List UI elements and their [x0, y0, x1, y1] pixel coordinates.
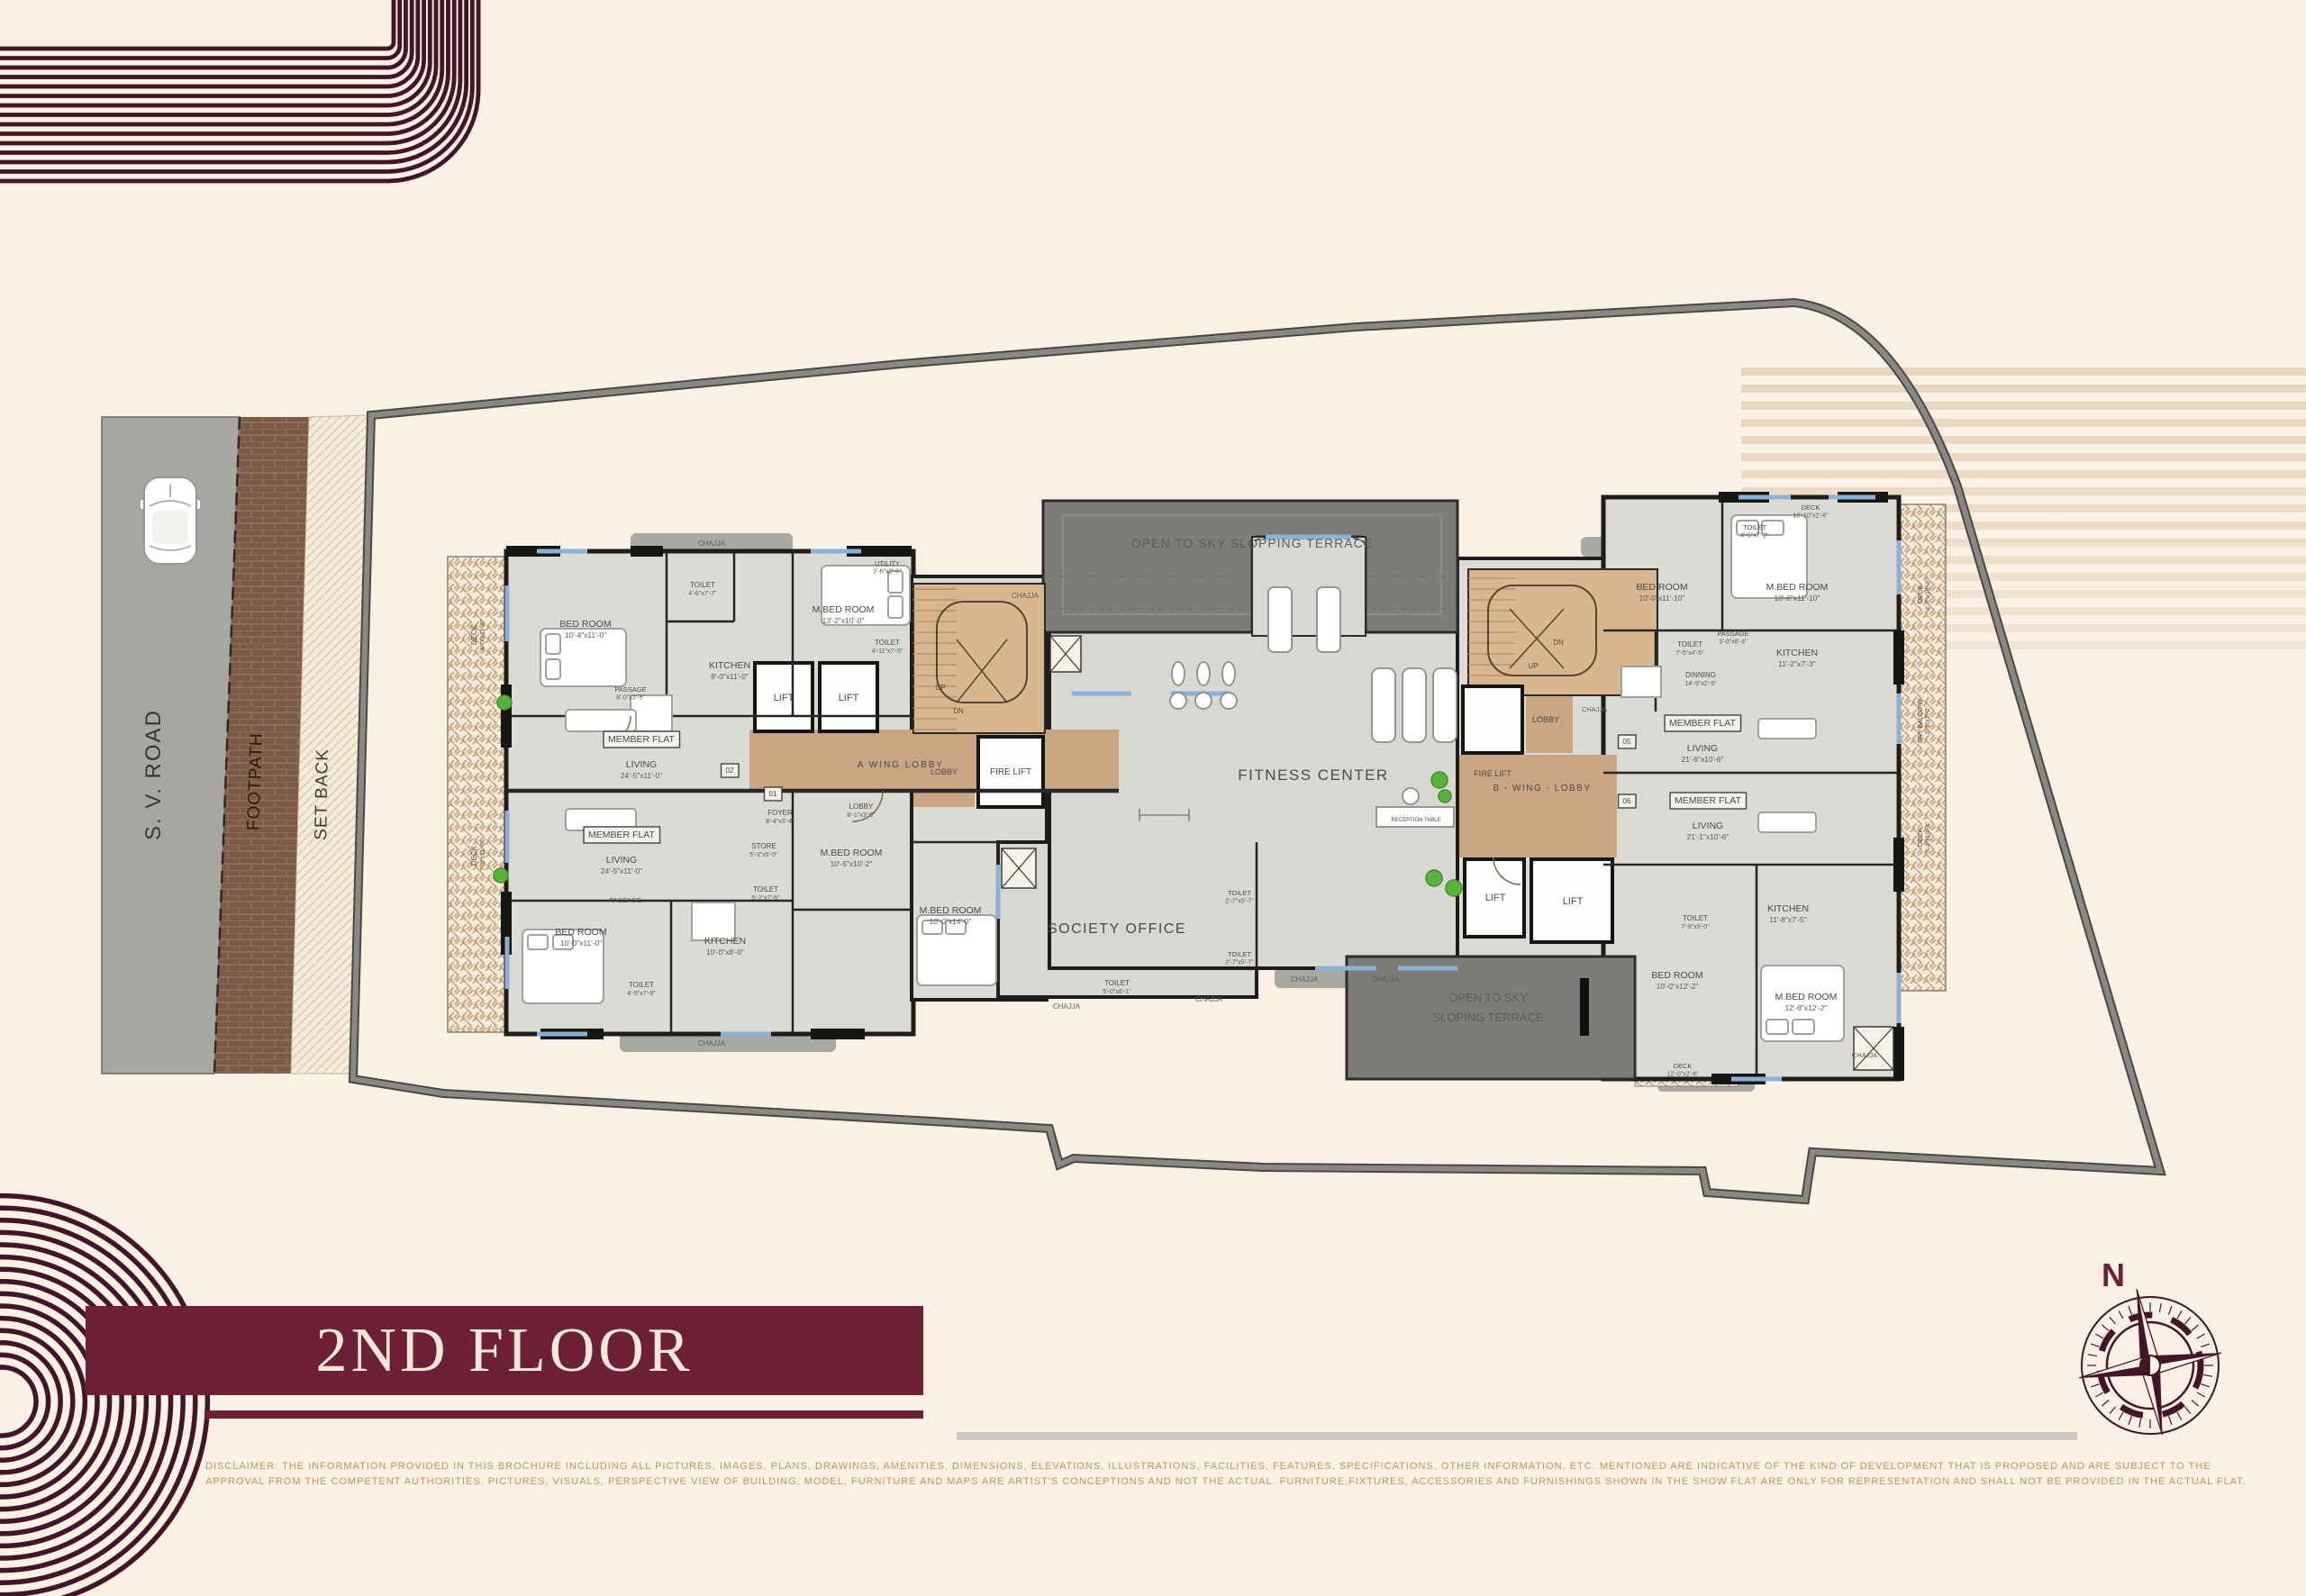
reception-table-label: RECEPTION TABLE [1391, 818, 1440, 823]
terrace-top [1043, 501, 1457, 632]
kitchen-label: KITCHEN11'-2"x7'-3" [1776, 648, 1818, 668]
fitness-center-label: FITNESS CENTER [1238, 766, 1388, 784]
01-label: 01 [769, 790, 777, 798]
car-icon [140, 477, 201, 564]
passage-label: PASSAGE3'-0"x8'-4" [1717, 630, 1748, 646]
dn-label: DN [953, 707, 964, 715]
m-bed-room-label: M.BED ROOM10'-6"x11'-10" [1766, 582, 1829, 603]
lift-label: LIFT [1563, 896, 1584, 907]
06-label: 06 [1623, 797, 1631, 805]
terrace-top-label: OPEN TO SKY SLOPPING TERRACE [1131, 536, 1373, 550]
up-label: UP [1528, 662, 1538, 670]
chajja-label: CHAJJA [698, 1039, 726, 1047]
brochure-page: { "page": {"width": 2560, "height": 1772… [0, 0, 2306, 1596]
up-label: UP [935, 684, 945, 692]
road-label: S. V. ROAD [141, 709, 166, 840]
living-label: LIVING21'-1"x10'-6" [1687, 821, 1729, 841]
member-flat-label: MEMBER FLAT [588, 830, 655, 840]
chajja-label: CHAJJA [1372, 975, 1400, 984]
setback-label: SET BACK [312, 748, 332, 840]
kitchen-label: KITCHEN10'-0"x8'-0" [704, 936, 746, 957]
compass-rose: N [2061, 1245, 2241, 1452]
living-label: LIVING24'-5"x11'-0" [601, 855, 642, 875]
member-flat-label: MEMBER FLAT [608, 734, 675, 745]
footpath-label: FOOTPATH [244, 732, 267, 830]
b-wing-lobby-label: B - WING - LOBBY [1493, 784, 1591, 793]
utility-label: UTILITY3'-6"x2'-5" [873, 559, 902, 576]
kitchen-label: KITCHEN8'-0"x11'-0" [709, 660, 750, 681]
living-label: LIVING21'-6"x10'-6" [1682, 743, 1724, 764]
deck-strip-right [1899, 504, 1946, 991]
divider-line [957, 1432, 2077, 1440]
disclaimer-line-2: APPROVAL FROM THE COMPETENT AUTHORITIES.… [205, 1474, 2247, 1490]
bed-room-label: BED ROOM10'-0"x11'-0" [555, 927, 606, 948]
fire-lift-label: FIRE LIFT [1474, 769, 1512, 778]
lobby-label: LOBBY [931, 767, 958, 776]
society-office-label: SOCIETY OFFICE [1048, 921, 1186, 937]
fitness-hall [1049, 630, 1457, 968]
lift-label: LIFT [774, 693, 794, 703]
title-underline [204, 1410, 923, 1419]
toilet-label: TOILET2'-7"x5'-7" [1225, 950, 1254, 966]
chajja-label: CHAJJA [1053, 1002, 1081, 1011]
chajja-label: CHAJJA [698, 540, 726, 548]
member-flat-label: MEMBER FLAT [1675, 795, 1741, 806]
bed-room-label: BED ROOM10'-4"x11'-0" [559, 619, 611, 639]
toilet-label: TOILET4'-5"x7'-2" [1740, 523, 1769, 540]
toilet-label: TOILET2'-7"x5'-7" [1225, 889, 1254, 905]
dn-label: DN [1553, 639, 1564, 647]
reception-desk [1376, 807, 1454, 827]
staircase-a [913, 584, 1045, 733]
bed-room-label: BED ROOM10'-0"x11'-10" [1636, 582, 1687, 603]
passage-label: PASSAGE8'-0"x3'-5" [614, 685, 646, 702]
chajja-label: CHAJJA [1582, 705, 1607, 713]
page-title: 2ND FLOOR [315, 1315, 693, 1387]
02-label: 02 [726, 766, 734, 775]
terrace-bottom-label-1: OPEN TO SKY [1448, 991, 1528, 1004]
living-label: LIVING24'-5"x11'-0" [621, 759, 662, 780]
lift-label: LIFT [1485, 893, 1506, 903]
lift-label: LIFT [839, 693, 859, 703]
disclaimer-line-1: DISCLAIMER: THE INFORMATION PROVIDED IN … [205, 1459, 2247, 1474]
chajja-label: CHAJJA [1195, 995, 1223, 1003]
compass-north-label: N [2102, 1256, 2125, 1293]
chajja-label: CHAJJA [1291, 975, 1319, 984]
05-label: 05 [1623, 738, 1631, 746]
chajja-label: CHAJJA [1012, 592, 1040, 600]
disclaimer: DISCLAIMER: THE INFORMATION PROVIDED IN … [205, 1459, 2247, 1490]
chajja-label: CHAJJA [1852, 1051, 1877, 1059]
bed-room-label: BED ROOM10'-0"x12'-2" [1651, 970, 1702, 991]
terrace-bottom-label-2: SLOPING TERRACE [1432, 1011, 1544, 1024]
kitchen-label: KITCHEN11'-8"x7'-5" [1767, 903, 1809, 924]
lobby-label: LOBBY [1532, 715, 1559, 724]
passage-label: PASSAGE [609, 896, 640, 904]
floor-title-banner: 2ND FLOOR [86, 1306, 923, 1395]
fire-lift-label: FIRE LIFT [990, 767, 1031, 777]
fire-lift-b [1463, 686, 1522, 753]
member-flat-label: MEMBER FLAT [1669, 718, 1736, 729]
